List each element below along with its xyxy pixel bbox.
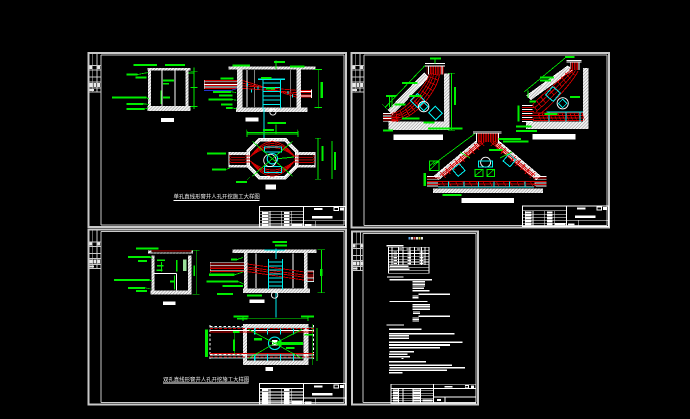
svg-text:双孔直线形窨井人孔开挖施工大样图: 双孔直线形窨井人孔开挖施工大样图 <box>163 375 249 383</box>
svg-text:单孔直线形窨井人孔开挖施工大样图: 单孔直线形窨井人孔开挖施工大样图 <box>174 193 260 201</box>
